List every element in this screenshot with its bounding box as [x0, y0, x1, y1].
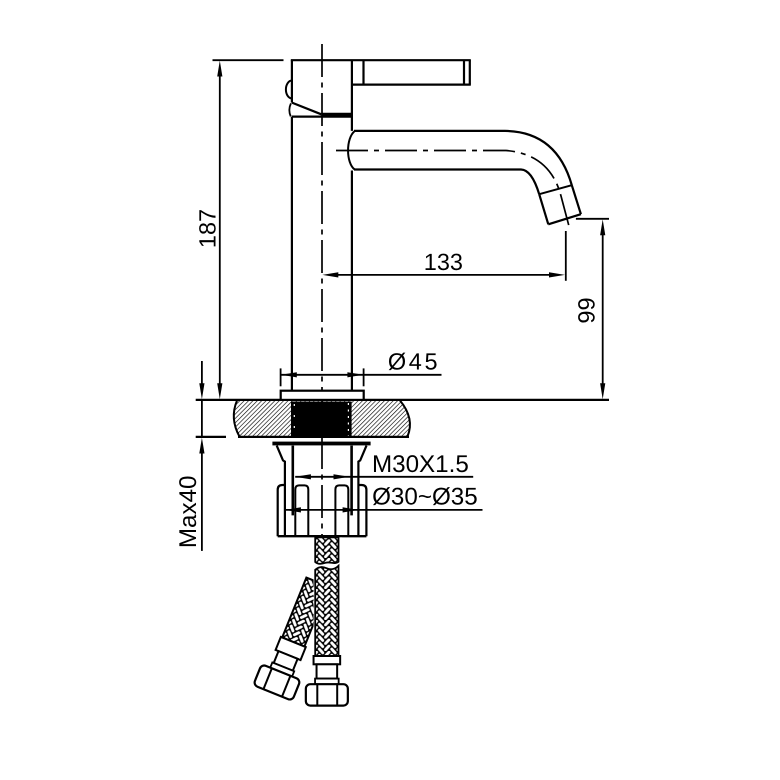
- svg-text:187: 187: [195, 209, 221, 248]
- svg-text:M30X1.5: M30X1.5: [372, 451, 469, 478]
- svg-text:133: 133: [424, 249, 463, 275]
- svg-text:Ø45: Ø45: [388, 348, 440, 374]
- svg-text:99: 99: [574, 297, 600, 323]
- svg-text:Max40: Max40: [175, 475, 202, 548]
- svg-text:Ø30~Ø35: Ø30~Ø35: [372, 484, 478, 511]
